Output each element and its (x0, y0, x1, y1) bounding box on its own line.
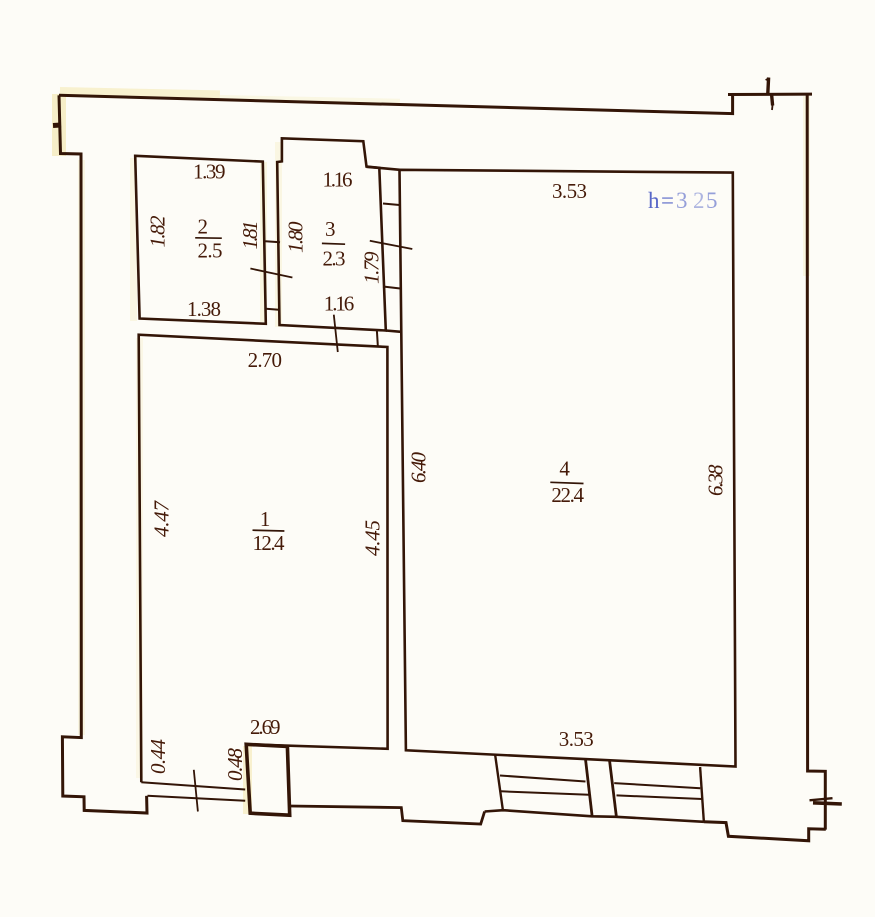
svg-text:2: 2 (693, 188, 705, 213)
svg-text:4: 4 (559, 457, 570, 481)
svg-text:2.69: 2.69 (250, 715, 281, 739)
svg-text:2.5: 2.5 (198, 239, 223, 263)
svg-text:1.38: 1.38 (187, 297, 221, 321)
svg-text:3.53: 3.53 (552, 179, 587, 203)
svg-text:2: 2 (198, 215, 209, 239)
svg-text:4.45: 4.45 (361, 520, 385, 556)
svg-text:1: 1 (260, 507, 271, 531)
svg-text:6.40: 6.40 (407, 452, 431, 484)
svg-text:h=: h= (648, 188, 674, 213)
svg-text:0.44: 0.44 (146, 739, 170, 775)
svg-text:3.53: 3.53 (559, 727, 594, 751)
svg-text:1.16: 1.16 (323, 168, 353, 192)
svg-text:1.82: 1.82 (146, 215, 170, 248)
svg-text:4.47: 4.47 (150, 500, 174, 538)
svg-text:2.70: 2.70 (248, 348, 282, 372)
svg-text:22.4: 22.4 (551, 483, 584, 507)
svg-text:2.3: 2.3 (323, 247, 346, 271)
svg-text:1.39: 1.39 (193, 160, 226, 184)
svg-text:0.48: 0.48 (223, 748, 247, 782)
svg-text:1.80: 1.80 (284, 221, 308, 253)
svg-text:12.4: 12.4 (253, 531, 286, 555)
svg-text:5: 5 (706, 188, 718, 213)
svg-text:3: 3 (676, 188, 688, 213)
svg-text:3: 3 (325, 217, 336, 241)
svg-text:1.81: 1.81 (238, 221, 262, 250)
svg-text:1.79: 1.79 (360, 251, 384, 284)
svg-text:6.38: 6.38 (704, 464, 728, 496)
svg-text:1.16: 1.16 (324, 292, 355, 316)
